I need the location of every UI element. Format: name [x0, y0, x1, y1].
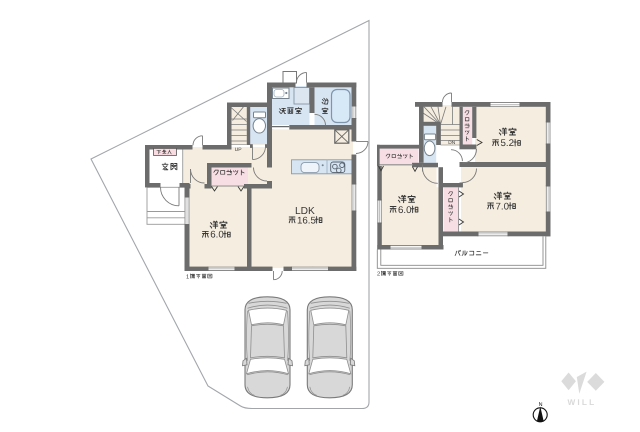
svg-text:5.2: 5.2: [501, 138, 514, 149]
svg-text:6.0: 6.0: [210, 230, 224, 241]
svg-text:N: N: [539, 402, 543, 408]
svg-text:1: 1: [186, 274, 189, 280]
svg-text:16.5: 16.5: [297, 215, 316, 226]
svg-text:WILL: WILL: [568, 398, 597, 407]
svg-text:7.0: 7.0: [496, 201, 510, 212]
svg-text:UP: UP: [235, 147, 243, 153]
svg-text:6.0: 6.0: [398, 205, 412, 216]
svg-text:2: 2: [377, 271, 380, 278]
svg-text:DN: DN: [448, 140, 455, 146]
